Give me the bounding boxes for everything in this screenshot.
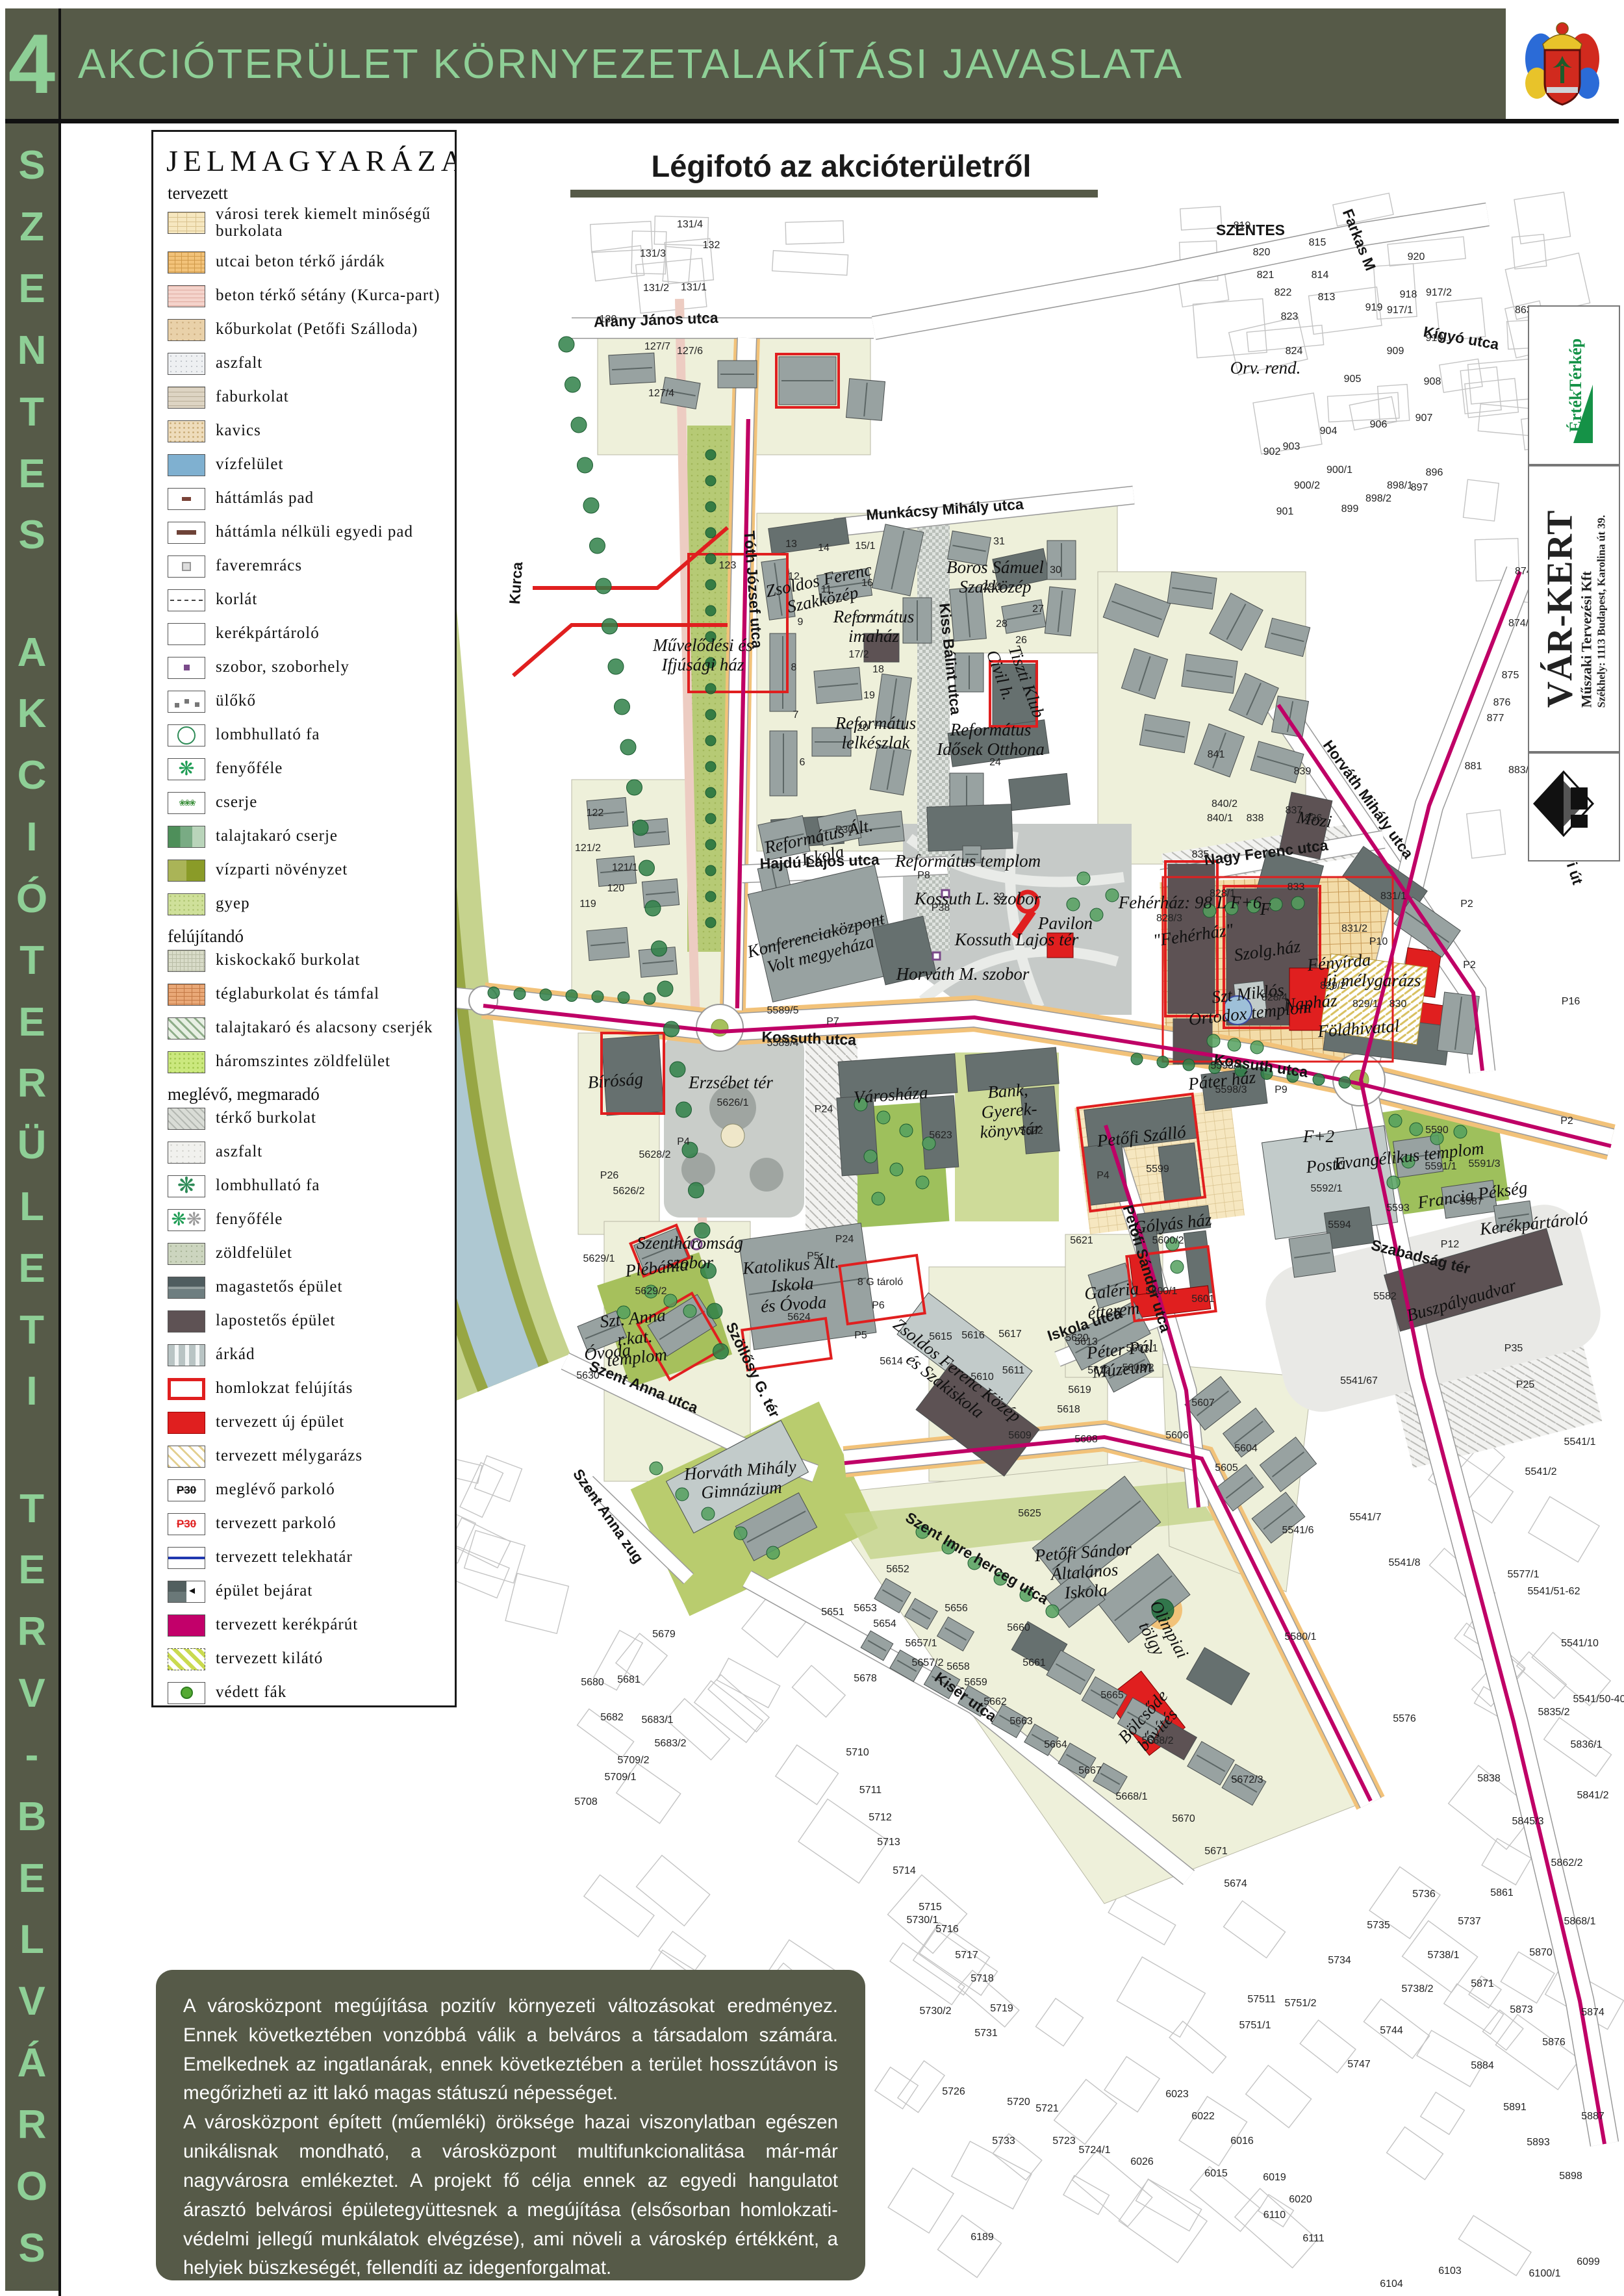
parcel-number: 5605 (1215, 1462, 1238, 1473)
parcel-number: 828/3 (1156, 913, 1182, 924)
parcel-number: 20 (857, 722, 869, 733)
legend-item: aszfalt (168, 1141, 446, 1164)
parcel-number: 5709/1 (605, 1772, 637, 1783)
parcel-number: 5721 (1035, 2103, 1059, 2114)
parcel-number: 130 (600, 314, 617, 325)
parcel-number: 920 (1408, 251, 1425, 262)
legend-item-label: aszfalt (216, 1143, 262, 1160)
parcel-number: 7 (793, 709, 799, 721)
parcel-number: 5608 (1074, 1434, 1098, 1445)
parcel-number: 824 (1286, 346, 1303, 357)
parcel-number: 131/2 (643, 283, 669, 294)
legend-swatch-ujep-icon (168, 1412, 205, 1434)
legend-title: JELMAGYARÁZAT (166, 144, 446, 178)
parcel-number: 5709/2 (618, 1755, 650, 1766)
epitesz-label-wrap: ÉPÍTÉSZ BT (1595, 797, 1624, 817)
parcel-number: 5577/1 (1508, 1569, 1540, 1580)
sidebar-letter: T (5, 1478, 58, 1540)
parcel-number: 5712 (869, 1812, 892, 1823)
legend: JELMAGYARÁZAT tervezettvárosi terek kiem… (151, 130, 457, 1707)
parcel-number: P2 (1560, 1116, 1573, 1127)
parcel-number: 5668/2 (1142, 1735, 1174, 1746)
parcel-number: 6110 (1263, 2210, 1286, 2221)
parcel-number: 5737 (1458, 1916, 1481, 1927)
parcel-number: 121/2 (575, 843, 601, 854)
parcel-number: 5714 (893, 1865, 916, 1876)
parcel-number: 16 (861, 578, 873, 589)
parcel-number: 9 (798, 617, 804, 628)
parcel-number: 5730/1 (907, 1915, 939, 1926)
sidebar-letter: B (5, 1786, 58, 1848)
sidebar-letter: E (5, 991, 58, 1053)
parcel-number: 5874 (1581, 2007, 1605, 2018)
ertekterkep-logo: ÉrtékTérkép (1528, 305, 1620, 465)
parcel-number: 5893 (1527, 2137, 1550, 2148)
legend-item: zöldfelület (168, 1242, 446, 1266)
varkert-name: VÁR-KERT (1542, 510, 1578, 708)
parcel-number: 5744 (1380, 2025, 1403, 2036)
parcel-number: 6015 (1204, 2168, 1228, 2179)
legend-item-label: kőburkolat (Petőfi Szálloda) (216, 321, 418, 338)
parcel-number: 5738/1 (1428, 1950, 1460, 1961)
parcel-number: 5541/6 (1282, 1525, 1314, 1536)
parcel-number: 910 (1426, 333, 1443, 344)
parcel-number: 5600/2 (1152, 1235, 1184, 1246)
legend-item-label: homlokzat felújítás (216, 1380, 353, 1397)
legend-item-label: utcai beton térkő járdák (216, 253, 385, 270)
parcel-number: 5619 (1068, 1384, 1091, 1396)
parcel-number: 5593 (1386, 1203, 1410, 1214)
legend-swatch-brickorange-icon (168, 251, 205, 274)
sidebar-letter: E (5, 1848, 58, 1909)
parcel-number: 5681 (617, 1674, 641, 1685)
parcel-number: 918 (1400, 289, 1417, 300)
parcel-number: 838 (1247, 813, 1264, 824)
parcel-number: 5723 (1052, 2136, 1076, 2147)
legend-swatch-kilato-icon (168, 1648, 205, 1670)
legend-item-label: lapostetős épület (216, 1312, 335, 1329)
sidebar-letter: Á (5, 2033, 58, 2095)
parcel-number: P10 (1369, 936, 1388, 947)
legend-item: magastetős épület (168, 1276, 446, 1299)
legend-item: lapostetős épület (168, 1310, 446, 1333)
epitesz-mark-icon (1533, 768, 1595, 846)
legend-swatch-viz-icon (168, 454, 205, 476)
legend-swatch-fenyoold-icon (168, 1209, 205, 1231)
parcel-number: 5541/51-62 (1528, 1586, 1580, 1597)
parcel-number: 829/2 (1320, 980, 1346, 991)
legend-section-header: tervezett (168, 183, 446, 203)
parcel-number: 829/1 (1352, 999, 1378, 1010)
parcel-number: 5672/3 (1232, 1774, 1263, 1785)
legend-item: háttámlás pad (168, 487, 446, 511)
legend-swatch-pinkgrid-icon (168, 285, 205, 307)
parcel-number: 31 (993, 536, 1005, 547)
parcel-number: 6100/1 (1529, 2268, 1561, 2279)
place-label: Orv. rend. (1230, 358, 1301, 377)
legend-item: tervezett új épület (168, 1411, 446, 1435)
parcel-number: 122 (587, 808, 604, 819)
legend-swatch-fabur-icon (168, 387, 205, 409)
parcel-number: 917/1 (1387, 305, 1413, 316)
sidebar-letter: S (5, 135, 58, 197)
parcel-number: 898/2 (1365, 493, 1391, 504)
legend-item-label: védett fák (216, 1684, 286, 1701)
parcel-number: 13 (785, 539, 797, 550)
parcel-number: 5541/2 (1525, 1466, 1557, 1477)
parcel-number: 5589/4 (767, 1038, 799, 1049)
parcel-number: 5651 (821, 1607, 844, 1618)
legend-item: aszfalt (168, 352, 446, 376)
sidebar-letter: E (5, 259, 58, 320)
parcel-number: 830 (1389, 999, 1407, 1010)
legend-swatch-empty-icon (168, 623, 205, 645)
parcel-number: 5626/2 (613, 1186, 645, 1197)
parcel-number: P30 (835, 824, 854, 835)
sidebar-letter: R (5, 1601, 58, 1663)
legend-item: beton térkő sétány (Kurca-part) (168, 285, 446, 308)
sidebar-letter: T (5, 381, 58, 443)
legend-swatch-arkad-icon (168, 1344, 205, 1366)
parcel-number: 5629/1 (583, 1253, 615, 1264)
parcel-number: 5592/1 (1311, 1183, 1343, 1194)
parcel-number: 29/1 (982, 581, 1002, 593)
legend-item: gyep (168, 893, 446, 916)
parcel-number: 5871 (1471, 1978, 1494, 1989)
parcel-number: 917/2 (1426, 287, 1452, 298)
parcel-number: 906 (1370, 419, 1388, 430)
map-title-underline (570, 190, 1098, 198)
parcel-number: 6019 (1263, 2172, 1286, 2183)
parcel-number: 896 (1426, 467, 1443, 478)
sidebar-letter: Ó (5, 868, 58, 930)
parcel-number: 30 (1050, 565, 1061, 576)
legend-item: homlokzat felújítás (168, 1377, 446, 1401)
parcel-number: 813 (1318, 292, 1336, 303)
parcel-number: 19 (863, 690, 875, 701)
parcel-number: P5 (807, 1251, 820, 1262)
parcel-number: 5665 (1100, 1690, 1124, 1701)
legend-swatch-zold-icon (168, 1243, 205, 1265)
parcel-number: 6 (800, 757, 806, 768)
parcel-number: 5884 (1471, 2060, 1494, 2071)
parcel-number: 5887 (1581, 2111, 1605, 2122)
parcel-number: 127/4 (648, 388, 674, 399)
parcel-number: 5624 (787, 1312, 811, 1323)
parcel-number: P24 (815, 1104, 833, 1115)
parcel-number: 132 (703, 240, 720, 251)
legend-item-label: zöldfelület (216, 1245, 292, 1262)
parcel-number: 5708 (574, 1796, 598, 1807)
legend-item: lombhullató fa (168, 1175, 446, 1198)
legend-item: tervezett kerékpárút (168, 1614, 446, 1637)
parcel-number: 5628/2 (639, 1149, 671, 1160)
sidebar-letter: R (5, 2095, 58, 2156)
parcel-number: 897 (1411, 482, 1428, 493)
parcel-number: 5868/1 (1564, 1916, 1596, 1927)
parcel-number: 831/2 (1341, 923, 1367, 934)
parcel-number: 5629/2 (635, 1286, 667, 1297)
sidebar-title: SZENTESAKCIÓTERÜLETITERV-BELVÁROS (5, 123, 58, 2291)
parcel-number: 120 (607, 883, 625, 894)
place-label: Pavilon (1037, 913, 1093, 933)
parcel-number: P4 (1097, 1170, 1110, 1181)
parcel-number: 900/1 (1326, 465, 1352, 476)
parcel-number: 5622 (1020, 1125, 1043, 1136)
legend-item: fenyőféle (168, 1208, 446, 1232)
parcel-number: 5630 (576, 1370, 600, 1381)
sidebar-letter: N (5, 320, 58, 381)
map-title: Légifotó az akcióterületről (575, 148, 1108, 184)
legend-item: kőburkolat (Petőfi Szálloda) (168, 318, 446, 342)
parcel-number: 5580/1 (1285, 1631, 1317, 1642)
legend-item-label: árkád (216, 1346, 255, 1363)
legend-swatch-terkoold-icon (168, 1108, 205, 1130)
parcel-number: 5613 (1074, 1336, 1098, 1347)
legend-item: faburkolat (168, 386, 446, 409)
place-label: Bíróság (587, 1069, 644, 1092)
parcel-number: 5663 (1009, 1716, 1033, 1727)
legend-swatch-aszfalto-icon (168, 1142, 205, 1164)
parcel-number: 5751/1 (1239, 2020, 1271, 2031)
place-label: Horváth M. szobor (896, 964, 1030, 984)
sidebar-letter: I (5, 1361, 58, 1423)
legend-swatch-talajcserje-icon (168, 826, 205, 848)
legend-item: kerékpártároló (168, 622, 446, 646)
parcel-number: 840/1 (1207, 813, 1233, 824)
parcel-number: P4 (677, 1136, 690, 1147)
parcel-number: 5671 (1204, 1846, 1228, 1857)
parcel-number: 837 (1286, 805, 1303, 816)
legend-swatch-melyg-icon (168, 1446, 205, 1468)
legend-item-label: kerékpártároló (216, 625, 320, 642)
parcel-number: 6026 (1130, 2156, 1154, 2167)
place-label: Művelődési ésIfjúsági ház (652, 635, 753, 674)
parcel-number: 5658 (946, 1661, 970, 1672)
legend-swatch-tegla-icon (168, 984, 205, 1006)
legend-item-label: ülőkő (216, 693, 256, 709)
parcel-number: 28 (996, 619, 1008, 630)
parcel-number: 5615 (929, 1331, 952, 1342)
legend-item-label: cserje (216, 794, 257, 811)
parcel-number: 821 (1257, 270, 1275, 281)
parcel-number: 898/1 (1387, 480, 1413, 491)
legend-swatch-kavics-icon (168, 420, 205, 442)
parcel-number: 5731 (974, 2028, 998, 2039)
legend-item-label: tervezett új épület (216, 1414, 344, 1431)
parcel-number: 5734 (1328, 1955, 1351, 1966)
legend-swatch-kerek-icon (168, 1614, 205, 1637)
sidebar-letter: O (5, 2156, 58, 2217)
varkert-logo: VÁR-KERT Műszaki Tervezési Kft Székhely:… (1528, 465, 1620, 752)
parcel-number: P16 (1562, 996, 1580, 1007)
parcel-number: 5862/2 (1551, 1857, 1583, 1869)
page-title: AKCIÓTERÜLET KÖRNYEZETALAKÍTÁSI JAVASLAT… (78, 8, 1501, 119)
parcel-number: 6104 (1380, 2278, 1403, 2290)
parcel-number: 904 (1320, 426, 1338, 437)
legend-item: kiskockakő burkolat (168, 949, 446, 973)
legend-item: tervezett telekhatár (168, 1546, 446, 1570)
legend-item: utcai beton térkő járdák (168, 251, 446, 274)
legend-item-label: tervezett mélygarázs (216, 1448, 362, 1464)
legend-item-label: szobor, szoborhely (216, 659, 349, 676)
legend-item: P30meglévő parkoló (168, 1479, 446, 1502)
place-label: Erzsébet tér (688, 1073, 773, 1092)
parcel-number: 5612 (1087, 1365, 1111, 1376)
parcel-number: 5604 (1234, 1443, 1258, 1454)
legend-item: vízparti növényzet (168, 859, 446, 882)
parcel-number: 839 (1294, 766, 1312, 777)
sidebar-letter: S (5, 505, 58, 567)
legend-item: vízfelület (168, 453, 446, 477)
parcel-number: 17/1 (855, 614, 875, 625)
parcel-number: P5 (854, 1330, 867, 1341)
parcel-number: 8 (791, 662, 797, 673)
legend-item-label: lombhullató fa (216, 726, 320, 743)
legend-swatch-vizparti-icon (168, 860, 205, 882)
parcel-number: 5621 (1070, 1235, 1093, 1246)
parcel-number: 841 (1208, 749, 1225, 760)
parcel-number: 905 (1344, 374, 1362, 385)
parcel-number: 5598/3 (1215, 1084, 1247, 1095)
parcel-number: 5710 (846, 1747, 869, 1758)
parcel-number: 5716 (935, 1924, 959, 1935)
legend-item-label: térkő burkolat (216, 1110, 316, 1127)
legend-swatch-gyep-icon (168, 893, 205, 915)
parcel-number: P24 (835, 1234, 854, 1245)
parcel-number: 5587 (1460, 1196, 1483, 1207)
parcel-number: 5590 (1425, 1125, 1449, 1136)
legend-item: lombhullató fa (168, 724, 446, 747)
parcel-number: 5598/4 (1211, 1060, 1243, 1071)
parcel-number: 127/7 (644, 341, 670, 352)
parcel-number: 5713 (877, 1837, 900, 1848)
parcel-number: 6189 (971, 2232, 994, 2243)
parcel-number: 828/4 (1262, 992, 1288, 1003)
legend-item-label: városi terek kiemelt minőségű burkolata (216, 206, 446, 240)
legend-item-label: faburkolat (216, 389, 289, 405)
parcel-number: 131/3 (640, 248, 666, 259)
parcel-number: 5838 (1477, 1773, 1501, 1784)
legend-item: ülőkő (168, 690, 446, 713)
parcel-number: 823 (1281, 311, 1299, 322)
header-underline (5, 119, 1619, 123)
parcel-number: 22 (993, 891, 1005, 902)
legend-swatch-magas-icon (168, 1277, 205, 1299)
parcel-number: 5861 (1490, 1887, 1514, 1898)
parcel-number: 131/4 (677, 219, 703, 230)
legend-item-label: beton térkő sétány (Kurca-part) (216, 287, 440, 304)
parcel-number: P35 (1504, 1343, 1523, 1354)
parcel-number: 5719 (990, 2003, 1013, 2014)
parcel-number: 5601 (1191, 1294, 1215, 1305)
place-label: Fehérház: 98 L F+6 (1118, 893, 1262, 912)
legend-item-label: háttámla nélküli egyedi pad (216, 524, 413, 541)
legend-item-label: meglévő parkoló (216, 1481, 335, 1498)
parcel-number: 5891 (1503, 2102, 1527, 2113)
legend-item-label: kavics (216, 422, 261, 439)
parcel-number: 5541/8 (1389, 1557, 1421, 1568)
sidebar-letter: V (5, 1663, 58, 1725)
parcel-number: 877 (1487, 713, 1504, 724)
parcel-number: 5610 (971, 1371, 994, 1383)
place-label: F (1260, 899, 1271, 919)
sidebar-letter (5, 567, 58, 622)
parcel-number: P2 (1463, 960, 1476, 971)
legend-item: téglaburkolat és támfal (168, 983, 446, 1006)
parcel-number: 5876 (1542, 2037, 1566, 2048)
sidebar-letter: E (5, 1238, 58, 1299)
parcel-number: 5626/1 (717, 1097, 749, 1108)
parcel-number: 909 (1387, 346, 1404, 357)
parcel-number: 5674 (1224, 1878, 1247, 1889)
legend-swatch-homlok-icon (168, 1378, 205, 1400)
parcel-number: P7 (826, 1016, 839, 1027)
parcel-number: 815 (1309, 237, 1326, 248)
legend-item: árkád (168, 1344, 446, 1367)
parcel-number: 814 (1312, 270, 1329, 281)
parcel-number: 5836/1 (1571, 1739, 1603, 1750)
sidebar-letter: R (5, 1053, 58, 1115)
legend-item-label: vízparti növényzet (216, 861, 348, 878)
legend-swatch-fanew-icon (168, 724, 205, 746)
parcel-number: 5653 (854, 1603, 877, 1614)
parcel-number: 822 (1275, 287, 1292, 298)
legend-item: fenyőféle (168, 758, 446, 781)
legend-swatch-harom-icon (168, 1051, 205, 1073)
sidebar-letter: A (5, 622, 58, 683)
parcel-number: 901 (1276, 506, 1294, 517)
parcel-number: 5657/2 (912, 1657, 944, 1668)
legend-swatch-cserje-icon (168, 792, 205, 814)
parcel-number: 5616 (961, 1330, 985, 1341)
parcel-number: 5664 (1044, 1739, 1067, 1750)
varkert-address: Székhely: 1113 Budapest, Karolina út 39. (1595, 515, 1606, 708)
sidebar-letter: S (5, 2217, 58, 2279)
parcel-number: 5873 (1510, 2004, 1533, 2015)
parcel-number: 15/1 (855, 541, 875, 552)
parcel-number: 828/1 (1210, 888, 1236, 899)
legend-items: tervezettvárosi terek kiemelt minőségű b… (166, 183, 446, 1705)
sidebar-letter: I (5, 807, 58, 869)
legend-swatch-empty-icon: P30 (168, 1479, 205, 1501)
parcel-number: 5730/2 (920, 2006, 952, 2017)
legend-item: korlát (168, 589, 446, 612)
parcel-number: 6111 (1302, 2233, 1324, 2244)
parcel-number: 27 (1032, 604, 1044, 615)
legend-item-label: fenyőféle (216, 1211, 283, 1228)
parcel-number: 5659 (964, 1677, 987, 1688)
parcel-number: 5617 (998, 1329, 1022, 1340)
page-number: 4 (5, 8, 58, 119)
parcel-number: P12 (1441, 1239, 1460, 1250)
parcel-number: 5623 (929, 1130, 952, 1141)
parcel-number: 820 (1253, 247, 1271, 258)
parcel-number: 840/2 (1212, 798, 1237, 810)
legend-swatch-pad1-icon (168, 488, 205, 510)
parcel-number: 5726 (942, 2086, 965, 2097)
parcel-number: 5845/3 (1512, 1816, 1544, 1827)
parcel-number: 5591/3 (1469, 1158, 1501, 1169)
parcel-number: 836 (1305, 813, 1323, 824)
sidebar-letter (5, 1423, 58, 1478)
legend-item-label: téglaburkolat és támfal (216, 986, 379, 1002)
parcel-number: 5654 (873, 1618, 896, 1629)
sidebar-letter: E (5, 1540, 58, 1601)
parcel-number: 5599 (1146, 1164, 1169, 1175)
legend-swatch-vedett-icon (168, 1682, 205, 1704)
parcel-number: 835 (1192, 849, 1210, 860)
